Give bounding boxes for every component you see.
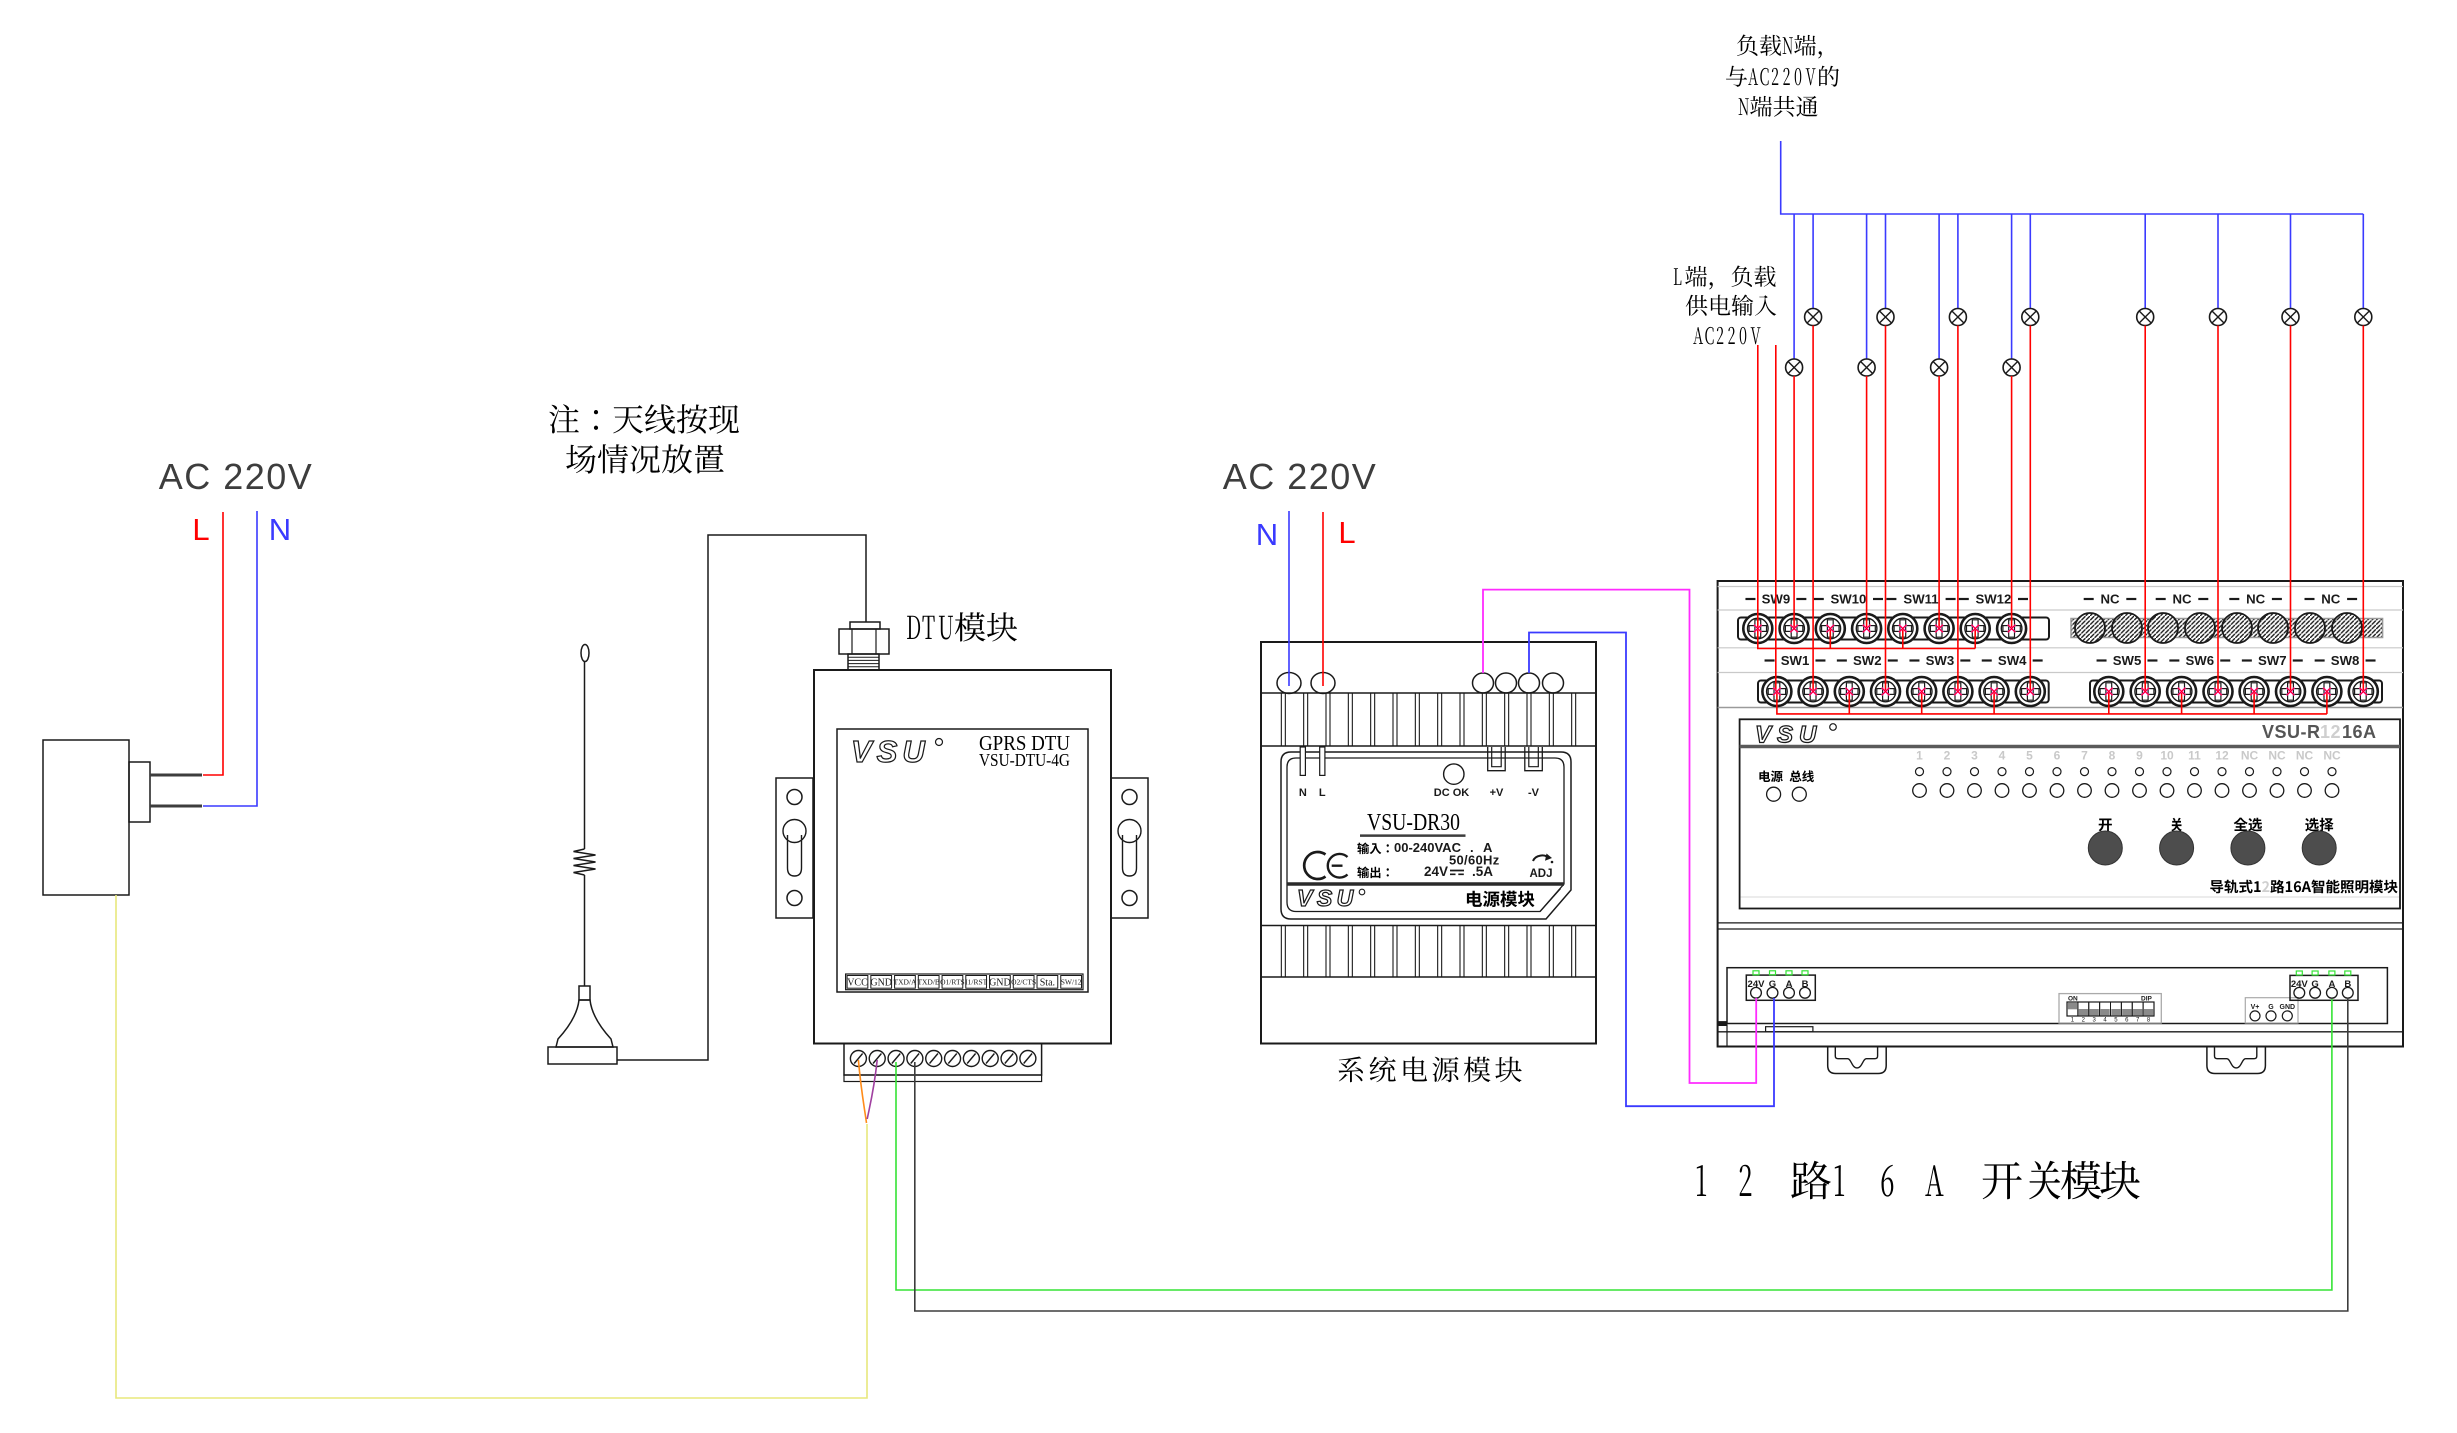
- svg-text:11: 11: [2188, 749, 2201, 763]
- svg-text:GND: GND: [989, 978, 1011, 989]
- svg-text:SW5: SW5: [2113, 653, 2142, 668]
- svg-text:VSU: VSU: [851, 734, 930, 769]
- svg-text:NC: NC: [2241, 749, 2259, 763]
- svg-text:L: L: [192, 512, 209, 547]
- svg-text:VSU-R: VSU-R: [2262, 722, 2321, 742]
- svg-text:VCC: VCC: [847, 978, 868, 989]
- svg-text:SW1: SW1: [1781, 653, 1810, 668]
- svg-text:-V: -V: [1528, 787, 1540, 799]
- svg-text:N: N: [269, 512, 291, 547]
- svg-text:.5A: .5A: [1472, 864, 1493, 879]
- svg-text:5: 5: [2026, 749, 2033, 763]
- svg-text:VSU: VSU: [1297, 885, 1358, 911]
- svg-text:O2/CTS: O2/CTS: [1011, 978, 1036, 987]
- svg-text:NC: NC: [2100, 592, 2120, 607]
- svg-text:G: G: [2268, 1004, 2274, 1011]
- svg-text:SW12: SW12: [1975, 592, 2011, 607]
- svg-text:VSU: VSU: [1755, 722, 1822, 749]
- svg-text:TXD/A: TXD/A: [893, 978, 916, 987]
- svg-text:AC 220V: AC 220V: [159, 456, 314, 497]
- svg-text:AC 220V: AC 220V: [1223, 456, 1378, 497]
- svg-text:NC: NC: [2172, 592, 2192, 607]
- svg-text:NC: NC: [2268, 749, 2286, 763]
- svg-text:3: 3: [1971, 749, 1978, 763]
- svg-text:NC: NC: [2296, 749, 2314, 763]
- svg-text:SW6: SW6: [2186, 653, 2215, 668]
- svg-text:L: L: [1338, 515, 1355, 550]
- svg-text:ADJ: ADJ: [1529, 868, 1552, 880]
- svg-text:TXD/B: TXD/B: [917, 978, 940, 987]
- svg-text:N: N: [1256, 517, 1278, 552]
- svg-text:SW3: SW3: [1926, 653, 1955, 668]
- svg-text:SW7: SW7: [2258, 653, 2287, 668]
- svg-text:7: 7: [2081, 749, 2088, 763]
- svg-text:12: 12: [2320, 722, 2341, 742]
- svg-text:GND: GND: [870, 978, 892, 989]
- svg-text:SW10: SW10: [1830, 592, 1866, 607]
- svg-text:V+: V+: [2251, 1004, 2260, 1011]
- svg-text:L: L: [1319, 787, 1326, 799]
- svg-text:24V: 24V: [2291, 979, 2309, 990]
- svg-text:SW/12: SW/12: [1061, 978, 1082, 987]
- svg-text:9: 9: [2136, 749, 2143, 763]
- svg-text:4: 4: [1999, 749, 2006, 763]
- svg-text:O1/RTS: O1/RTS: [940, 978, 965, 987]
- svg-text:6: 6: [2054, 749, 2061, 763]
- svg-text:I1/RST: I1/RST: [965, 978, 988, 987]
- svg-text:GND: GND: [2280, 1004, 2296, 1011]
- svg-text:SW8: SW8: [2331, 653, 2360, 668]
- svg-text:12: 12: [2215, 749, 2229, 763]
- svg-text:VSU-DR30: VSU-DR30: [1367, 810, 1460, 836]
- svg-text:SW2: SW2: [1853, 653, 1882, 668]
- svg-text:Sta.: Sta.: [1040, 978, 1055, 989]
- svg-text:NC: NC: [2321, 592, 2341, 607]
- svg-text:SW11: SW11: [1903, 592, 1938, 607]
- svg-text:SW4: SW4: [1998, 653, 2027, 668]
- svg-text:24V: 24V: [1424, 864, 1448, 879]
- svg-text:8: 8: [2109, 749, 2116, 763]
- svg-text:VSU-DTU-4G: VSU-DTU-4G: [979, 750, 1070, 770]
- svg-text:+V: +V: [1490, 787, 1504, 799]
- svg-text:24V: 24V: [1748, 979, 1766, 990]
- svg-text:NC: NC: [2246, 592, 2266, 607]
- svg-text:NC: NC: [2323, 749, 2341, 763]
- svg-text:N: N: [1299, 787, 1307, 799]
- svg-text:2: 2: [1944, 749, 1951, 763]
- svg-text:16A: 16A: [2342, 722, 2377, 742]
- svg-text:1: 1: [1916, 749, 1923, 763]
- svg-text:DC OK: DC OK: [1434, 787, 1470, 799]
- svg-text:10: 10: [2160, 749, 2174, 763]
